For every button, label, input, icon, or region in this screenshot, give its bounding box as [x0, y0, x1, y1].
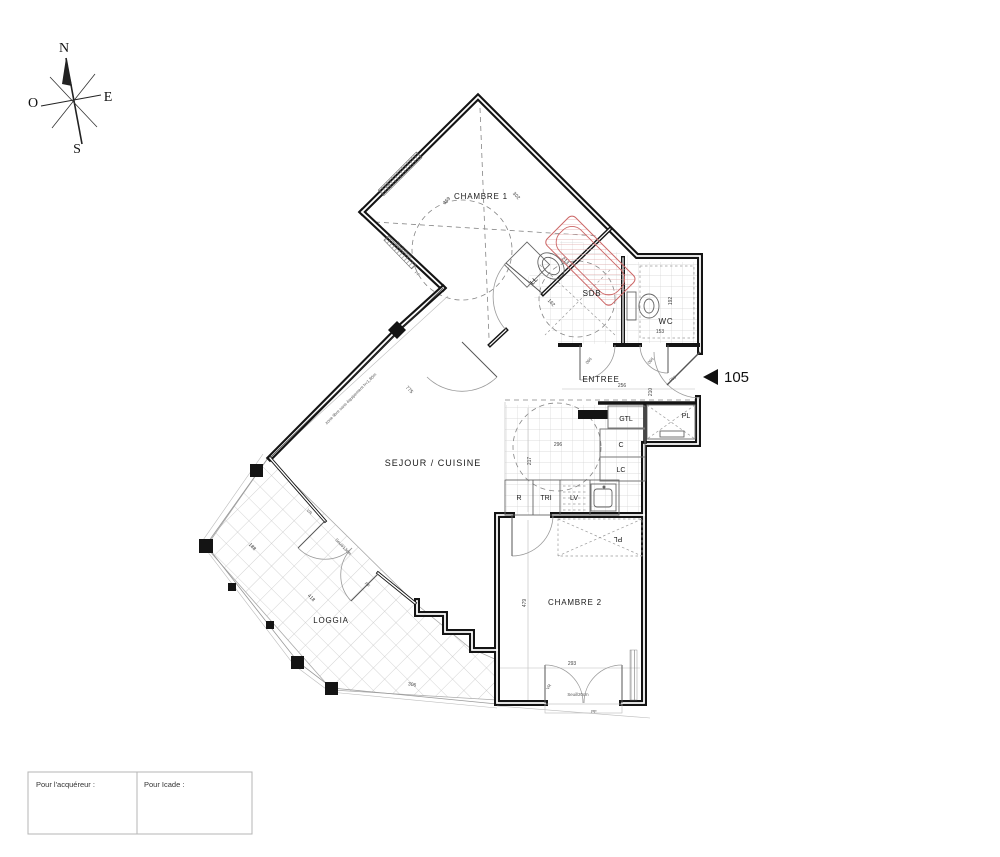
label-chambre2: CHAMBRE 2 — [548, 598, 602, 607]
label-r: R — [516, 495, 521, 502]
label-c: C — [618, 442, 623, 449]
compass-south-label: S — [73, 142, 81, 157]
dim-kitchen-h: 217 — [527, 457, 533, 466]
wall-stub — [578, 410, 608, 419]
dim-entree-w: 256 — [618, 383, 627, 389]
label-chambre1: CHAMBRE 1 — [454, 192, 508, 201]
signature-acquereur-label: Pour l'acquéreur : — [36, 780, 95, 789]
signature-icade-label: Pour Icade : — [144, 780, 184, 789]
label-sejour-cuisine: SEJOUR / CUISINE — [385, 458, 482, 468]
chambre2-radiator-icon — [630, 650, 637, 700]
label-lc: LC — [617, 467, 626, 474]
label-lv: LV — [570, 495, 578, 502]
compass-north-label: N — [59, 41, 69, 56]
dim-kitchen-circle: 296 — [554, 442, 563, 448]
label-sdb: SDB — [583, 289, 602, 298]
dim-wc-w: 153 — [656, 329, 665, 335]
label-loggia: LOGGIA — [313, 616, 348, 625]
compass-west-label: O — [28, 96, 38, 111]
floor-plan: N E O S — [0, 0, 1000, 857]
label-gtl: GTL — [619, 416, 633, 423]
label-entree: ENTREE — [582, 375, 619, 384]
dim-chambre2-h: 479 — [522, 599, 528, 608]
compass-east-label: E — [104, 90, 113, 105]
label-tri: TRI — [540, 495, 551, 502]
dim-chambre2-w: 293 — [568, 661, 577, 667]
label-wc: WC — [659, 317, 674, 326]
note-seuil-chambre2: Seuil/20cm — [567, 692, 589, 697]
note-pf-chambre2: PF — [591, 709, 597, 714]
label-pl-entree: PL — [682, 413, 691, 420]
dim-wc-h: 192 — [668, 297, 674, 306]
label-pl-chambre2: PL — [614, 535, 623, 542]
paper-background — [0, 0, 1000, 857]
floor-plan-sheet: N E O S — [0, 0, 1000, 857]
dim-entree-h: 210 — [648, 388, 654, 397]
unit-number: 105 — [724, 369, 749, 386]
